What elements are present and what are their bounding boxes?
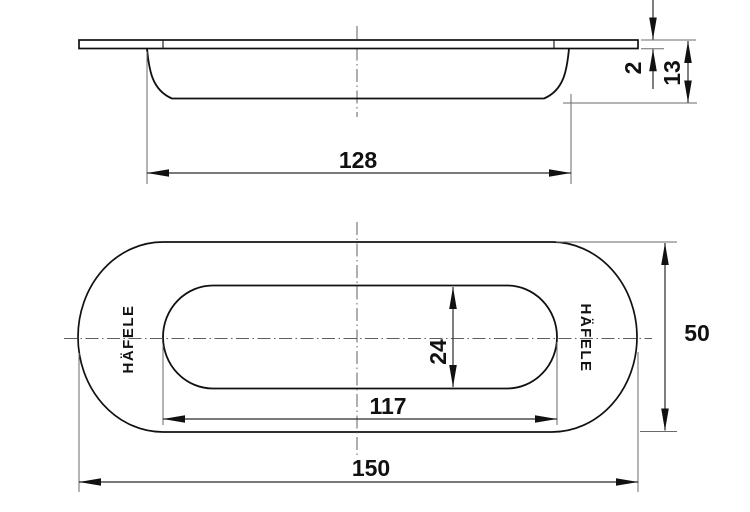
dim-13-label: 13 (659, 60, 685, 86)
dim-117-label: 117 (369, 393, 406, 419)
plan-view: HÄFELE HÄFELE 117 24 150 (64, 222, 710, 492)
brand-label-left: HÄFELE (120, 305, 137, 374)
side-view: 128 2 13 (79, 0, 697, 184)
dim-128-label: 128 (339, 147, 378, 173)
dim-2-label: 2 (620, 62, 646, 75)
brand-label-right: HÄFELE (577, 304, 594, 373)
dim-24-label: 24 (425, 339, 451, 365)
dim-150-label: 150 (352, 455, 390, 481)
dim-recess-width: 128 (147, 52, 571, 184)
recess-profile (147, 49, 569, 99)
drawing-canvas: 128 2 13 HÄFELE HÄFEL (0, 0, 750, 512)
dim-50-label: 50 (684, 320, 710, 346)
technical-drawing: 128 2 13 HÄFELE HÄFEL (0, 0, 750, 512)
